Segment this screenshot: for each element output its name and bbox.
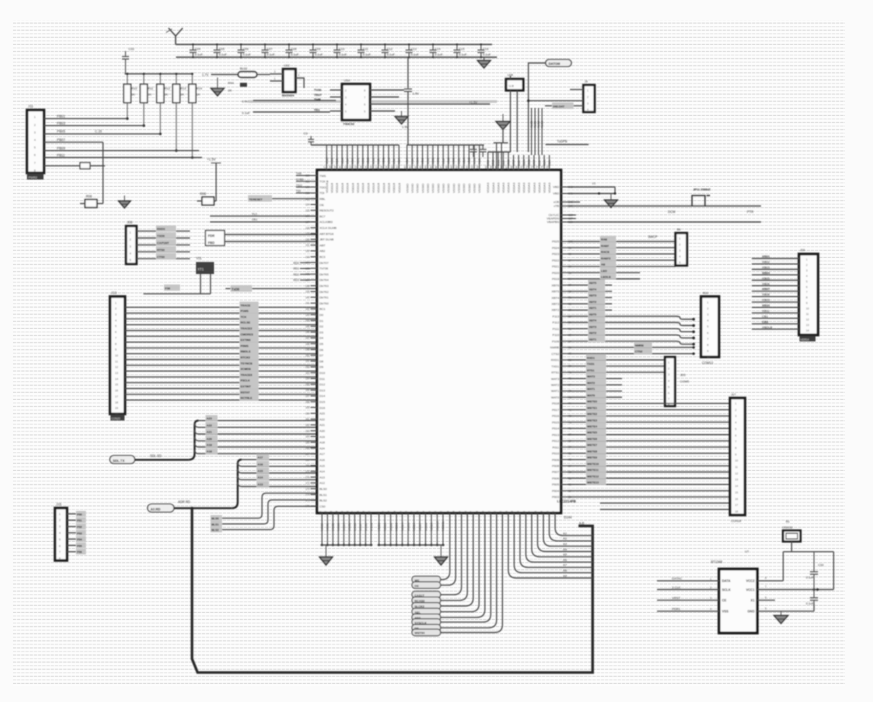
- svg-text:PB03: PB03: [57, 121, 65, 125]
- svg-text:P005: P005: [552, 483, 559, 487]
- svg-text:0.1uF: 0.1uF: [339, 53, 347, 57]
- svg-text:TRACE8: TRACE8: [241, 373, 253, 377]
- svg-text:175: 175: [305, 499, 310, 502]
- svg-text:P017: P017: [552, 408, 559, 412]
- svg-text:XB06: XB06: [762, 282, 770, 286]
- svg-text:D3: D3: [320, 330, 324, 334]
- svg-text:WBTE2: WBTE2: [587, 412, 598, 416]
- svg-text:MAX604: MAX604: [282, 94, 294, 98]
- svg-text:17: 17: [115, 394, 119, 398]
- svg-text:VSS: VSS: [532, 160, 536, 166]
- svg-text:VDA: VDA: [542, 159, 546, 166]
- svg-text:16: 16: [115, 389, 119, 393]
- svg-text:CON20: CON20: [112, 416, 121, 420]
- svg-text:TDO: TDO: [296, 183, 303, 187]
- svg-text:R08: R08: [200, 192, 206, 196]
- svg-text:132: 132: [305, 250, 310, 253]
- svg-text:VD1: VD1: [356, 158, 360, 164]
- svg-text:V18: V18: [478, 158, 482, 164]
- svg-text:VS3: VS3: [361, 158, 365, 164]
- svg-text:XBT5: XBT5: [589, 281, 597, 285]
- svg-text:VDDA3: VDDA3: [537, 182, 541, 193]
- svg-text:169: 169: [305, 465, 310, 468]
- svg-text:RABF: RABF: [601, 244, 609, 248]
- svg-text:V3A: V3A: [345, 157, 349, 164]
- svg-text:R06: R06: [86, 195, 92, 199]
- svg-text:PWR2: PWR2: [29, 175, 38, 179]
- svg-text:P023: P023: [552, 252, 559, 256]
- svg-text:WBT84: WBT84: [415, 631, 425, 635]
- svg-text:XBT2: XBT2: [589, 331, 597, 335]
- svg-text:24D.DAT: 24D.DAT: [553, 105, 565, 109]
- svg-text:P013: P013: [552, 433, 559, 437]
- svg-text:0.1uF: 0.1uF: [291, 53, 299, 57]
- svg-text:A13: A13: [320, 475, 326, 479]
- svg-text:C15: C15: [459, 47, 465, 51]
- svg-text:BLS0: BLS0: [320, 487, 328, 491]
- svg-text:0.1uF: 0.1uF: [411, 53, 419, 57]
- svg-text:141: 141: [305, 302, 310, 305]
- svg-text:B1: B1: [786, 520, 790, 524]
- svg-text:130: 130: [305, 238, 310, 241]
- svg-text:U.8: U.8: [509, 84, 514, 88]
- svg-text:VDD: VDD: [491, 159, 495, 166]
- svg-text:162: 162: [305, 424, 310, 427]
- svg-text:WAT1: WAT1: [551, 389, 559, 393]
- svg-text:WBTE3: WBTE3: [587, 418, 598, 422]
- svg-text:RXD1: RXD1: [551, 358, 559, 362]
- svg-text:A9: A9: [563, 574, 567, 578]
- svg-text:X1: X1: [751, 599, 755, 603]
- svg-text:159: 159: [305, 407, 310, 410]
- svg-text:1.7V: 1.7V: [202, 73, 209, 77]
- svg-text:C07: C07: [267, 47, 273, 51]
- svg-text:BLS0: BLS0: [212, 517, 220, 521]
- svg-text:P007: P007: [552, 470, 559, 474]
- svg-text:VSSIO: VSSIO: [441, 183, 445, 193]
- svg-text:P109: P109: [552, 339, 559, 343]
- svg-text:C13: C13: [411, 47, 417, 51]
- svg-text:B10: B10: [703, 291, 709, 295]
- svg-text:VSS: VSS: [472, 158, 476, 164]
- svg-text:TAB: TAB: [296, 172, 301, 176]
- svg-text:P022: P022: [552, 258, 559, 262]
- svg-text:A16: A16: [320, 458, 326, 462]
- svg-text:RCLSE: RCLSE: [241, 321, 251, 325]
- svg-text:BC3: BC3: [320, 255, 326, 259]
- svg-text:ABT: ABT: [320, 243, 326, 247]
- svg-text:P01: P01: [77, 519, 82, 523]
- svg-text:A23: A23: [320, 412, 326, 416]
- svg-text:J06: J06: [127, 221, 132, 225]
- svg-text:VSS: VSS: [512, 160, 516, 166]
- svg-text:P011: P011: [552, 445, 559, 449]
- svg-text:RTCK2: RTCK2: [241, 356, 251, 360]
- svg-text:VDD: VDD: [366, 157, 370, 164]
- svg-text:A14: A14: [258, 476, 264, 480]
- svg-text:C14: C14: [435, 47, 441, 51]
- svg-text:D14: D14: [320, 394, 326, 398]
- svg-text:CB2: CB2: [762, 320, 768, 324]
- svg-text:VCC2: VCC2: [746, 579, 755, 583]
- svg-text:P018: P018: [552, 402, 559, 406]
- svg-text:D12: D12: [320, 383, 326, 387]
- svg-text:J13: J13: [111, 291, 117, 295]
- svg-text:A1: A1: [563, 531, 567, 535]
- svg-text:138: 138: [305, 285, 310, 288]
- svg-text:C02: C02: [129, 47, 135, 51]
- svg-text:GND: GND: [747, 610, 755, 614]
- svg-text:BLS2: BLS2: [212, 528, 220, 532]
- svg-text:XBT3: XBT3: [589, 294, 597, 298]
- svg-text:J11: J11: [28, 105, 33, 109]
- svg-text:C30: C30: [818, 563, 824, 567]
- svg-text:VSSIO: VSSIO: [452, 183, 456, 193]
- svg-text:RBOLE: RBOLE: [241, 350, 251, 354]
- svg-text:P014: P014: [552, 427, 559, 431]
- svg-text:AB2: AB2: [320, 249, 326, 253]
- svg-text:V33: V33: [517, 160, 521, 166]
- svg-text:TMS: TMS: [320, 174, 326, 178]
- svg-text:RBL: RBL: [320, 197, 326, 201]
- svg-text:XCLK DLMB: XCLK DLMB: [320, 226, 337, 230]
- svg-text:DATA: DATA: [722, 579, 731, 583]
- svg-text:PB01: PB01: [57, 114, 65, 118]
- svg-text:P04: P04: [77, 538, 82, 542]
- svg-text:WBTE4: WBTE4: [587, 425, 598, 429]
- svg-text:P010: P010: [552, 452, 559, 456]
- svg-text:142: 142: [305, 308, 310, 311]
- svg-text:A17: A17: [320, 452, 326, 456]
- svg-text:VSSIO: VSSIO: [410, 183, 414, 193]
- svg-text:VDDA3: VDDA3: [517, 182, 521, 193]
- svg-text:P03: P03: [77, 531, 82, 535]
- svg-text:VDD18: VDD18: [351, 183, 355, 193]
- svg-text:VD1: VD1: [421, 158, 425, 164]
- svg-text:2.CLK: 2.CLK: [672, 585, 682, 589]
- svg-text:VBD: VBD: [553, 185, 560, 189]
- svg-text:176: 176: [305, 505, 310, 508]
- svg-text:XBT5: XBT5: [589, 312, 597, 316]
- svg-text:VDD: VDD: [431, 157, 435, 164]
- svg-text:V18: V18: [537, 160, 541, 166]
- svg-text:VDD18: VDD18: [366, 183, 370, 193]
- svg-text:CTS2: CTS2: [635, 350, 643, 354]
- svg-text:Y01: Y01: [196, 257, 202, 261]
- svg-text:RTS0: RTS0: [157, 248, 165, 252]
- svg-text:0.1uF: 0.1uF: [806, 602, 814, 606]
- svg-text:157: 157: [305, 395, 310, 398]
- svg-text:LBDLB: LBDLB: [601, 275, 611, 279]
- svg-text:COM5: COM5: [680, 380, 689, 384]
- svg-text:VSSIO: VSSIO: [431, 183, 435, 193]
- svg-text:WBTE10: WBTE10: [587, 462, 599, 466]
- svg-text:BLS2: BLS2: [320, 499, 328, 503]
- svg-text:XBT4: XBT4: [551, 296, 559, 300]
- svg-text:0.1uF: 0.1uF: [242, 111, 250, 115]
- svg-text:A24: A24: [320, 446, 326, 450]
- svg-text:C16: C16: [483, 47, 489, 51]
- svg-text:XB04: XB04: [762, 271, 770, 275]
- svg-text:C9: C9: [304, 132, 308, 136]
- svg-text:VSA: VSA: [416, 157, 420, 164]
- svg-text:F06: F06: [165, 286, 171, 290]
- svg-text:VSS: VSS: [452, 158, 456, 164]
- svg-text:TXD1: TXD1: [551, 364, 559, 368]
- svg-text:WBTE7: WBTE7: [587, 443, 598, 447]
- svg-text:RABF2: RABF2: [601, 256, 611, 260]
- svg-text:P020: P020: [552, 271, 559, 275]
- svg-text:160: 160: [305, 412, 310, 415]
- svg-text:C11: C11: [363, 47, 369, 51]
- svg-text:DATAC: DATAC: [672, 577, 683, 581]
- svg-text:VDD18: VDD18: [371, 183, 375, 193]
- svg-text:CB1: CB1: [762, 314, 768, 318]
- svg-text:C08: C08: [291, 47, 297, 51]
- svg-text:P019: P019: [552, 277, 559, 281]
- svg-text:0.1uF: 0.1uF: [219, 53, 227, 57]
- svg-text:A18: A18: [320, 441, 326, 445]
- svg-text:166: 166: [305, 447, 310, 450]
- svg-text:WAT0: WAT0: [587, 393, 595, 397]
- svg-text:VSSIO: VSSIO: [436, 183, 440, 193]
- svg-text:DbT64: DbT64: [320, 278, 329, 282]
- svg-text:R11: R11: [148, 87, 154, 91]
- svg-text:CTS2: CTS2: [551, 352, 559, 356]
- svg-text:RD2: RD2: [293, 272, 299, 276]
- svg-text:P021: P021: [552, 265, 559, 269]
- svg-text:VDD18: VDD18: [346, 183, 350, 193]
- svg-text:CAP1NT: CAP1NT: [157, 241, 169, 245]
- svg-text:P016: P016: [552, 414, 559, 418]
- svg-text:CON18: CON18: [731, 519, 741, 523]
- svg-text:J17: J17: [731, 393, 736, 397]
- svg-text:A22: A22: [320, 417, 326, 421]
- svg-text:VDD: VDD: [382, 157, 386, 164]
- svg-text:OE: OE: [415, 584, 419, 588]
- svg-text:VDDA3: VDDA3: [522, 182, 526, 193]
- svg-text:XB10: XB10: [762, 304, 770, 308]
- svg-text:VDDA3: VDDA3: [507, 182, 511, 193]
- svg-text:ACLK8B3: ACLK8B3: [320, 220, 334, 224]
- svg-text:A15: A15: [320, 464, 326, 468]
- svg-text:BC7: BC7: [320, 214, 326, 218]
- svg-text:A14: A14: [320, 470, 326, 474]
- svg-text:BLS1: BLS1: [212, 522, 220, 526]
- svg-text:154: 154: [305, 378, 310, 381]
- svg-text:A15: A15: [258, 469, 264, 473]
- svg-text:VDD18: VDD18: [387, 183, 391, 193]
- svg-text:D5: D5: [320, 342, 324, 346]
- svg-text:SCLK: SCLK: [722, 588, 731, 592]
- svg-text:R14: R14: [196, 87, 202, 91]
- svg-text:161: 161: [305, 418, 310, 421]
- svg-text:VSSIO: VSSIO: [478, 183, 482, 193]
- svg-text:VDD: VDD: [527, 159, 531, 166]
- svg-text:VDD18: VDD18: [392, 183, 396, 193]
- svg-text:+1.5V: +1.5V: [469, 101, 478, 105]
- svg-text:RSTAT: RSTAT: [241, 390, 250, 394]
- svg-text:TDO: TDO: [320, 185, 327, 189]
- svg-text:TCK: TCK: [241, 315, 248, 319]
- svg-text:0.1uF: 0.1uF: [387, 53, 395, 57]
- svg-text:P009: P009: [552, 458, 559, 462]
- svg-text:U7: U7: [745, 550, 749, 554]
- svg-text:WAT3: WAT3: [551, 377, 559, 381]
- svg-text:D144: D144: [564, 516, 572, 520]
- svg-text:+1.5V: +1.5V: [207, 158, 217, 162]
- svg-text:PB05: PB05: [57, 130, 65, 134]
- svg-text:A8: A8: [563, 569, 567, 573]
- svg-text:VSSIO: VSSIO: [473, 183, 477, 193]
- svg-text:155: 155: [305, 383, 310, 386]
- svg-text:XBT6: XBT6: [551, 283, 559, 287]
- svg-text:NMRB: NMRB: [635, 344, 644, 348]
- svg-text:VDD: VDD: [507, 159, 511, 166]
- svg-text:WAT2: WAT2: [587, 381, 595, 385]
- svg-text:CR2032: CR2032: [782, 525, 793, 529]
- svg-text:VDD18: VDD18: [356, 183, 360, 193]
- svg-text:V18: V18: [501, 160, 505, 166]
- svg-text:P006: P006: [552, 476, 559, 480]
- svg-text:U3A: U3A: [344, 79, 350, 83]
- svg-text:R10: R10: [131, 87, 137, 91]
- svg-text:131: 131: [305, 244, 310, 247]
- svg-text:DbT60: DbT60: [320, 301, 329, 305]
- svg-text:TB1: TB1: [314, 108, 320, 112]
- svg-text:VDDA3: VDDA3: [532, 182, 536, 193]
- svg-text:RAB: RAB: [601, 238, 607, 242]
- svg-text:P1MS: P1MS: [241, 309, 249, 313]
- svg-text:V33: V33: [457, 158, 461, 164]
- svg-text:VDD18: VDD18: [361, 183, 365, 193]
- svg-text:D6: D6: [320, 348, 324, 352]
- svg-text:VDD18: VDD18: [335, 183, 339, 193]
- svg-text:XBT5: XBT5: [551, 290, 559, 294]
- svg-text:DATGM: DATGM: [549, 62, 561, 66]
- svg-text:xTB: xTB: [554, 204, 559, 208]
- svg-text:XB01: XB01: [762, 255, 770, 259]
- svg-text:BC1: BC1: [320, 307, 326, 311]
- svg-text:164: 164: [305, 436, 310, 439]
- svg-text:D8: D8: [320, 359, 324, 363]
- svg-text:P111: P111: [552, 327, 559, 331]
- svg-text:VSSIO: VSSIO: [467, 183, 471, 193]
- svg-text:RTS1: RTS1: [551, 371, 559, 375]
- svg-text:CTS0: CTS0: [157, 255, 165, 259]
- svg-text:158: 158: [305, 401, 310, 404]
- svg-text:VDA: VDA: [462, 157, 466, 164]
- svg-text:P004: P004: [552, 489, 559, 493]
- svg-text:172: 172: [305, 482, 310, 485]
- svg-text:D1: D1: [320, 319, 324, 323]
- svg-text:ABT.BTG6: ABT.BTG6: [320, 232, 335, 236]
- svg-text:D9: D9: [320, 365, 324, 369]
- svg-text:CS0: CS0: [320, 504, 326, 508]
- svg-text:RCTRLE: RCTRLE: [241, 396, 253, 400]
- svg-text:VSSIO: VSSIO: [462, 183, 466, 193]
- svg-text:PL0: PL0: [252, 212, 257, 216]
- svg-text:XT1: XT1: [198, 268, 204, 272]
- svg-text:EXTINT: EXTINT: [241, 385, 252, 389]
- svg-text:WBTE8: WBTE8: [587, 449, 598, 453]
- svg-text:D2: D2: [320, 325, 324, 329]
- svg-text:P00: P00: [77, 512, 82, 516]
- svg-text:C06: C06: [243, 47, 249, 51]
- svg-text:R12: R12: [164, 87, 170, 91]
- svg-text:XB09: XB09: [762, 298, 770, 302]
- svg-text:D4: D4: [320, 336, 324, 340]
- svg-text:A21: A21: [320, 423, 326, 427]
- svg-text:0.1uF: 0.1uF: [459, 53, 467, 57]
- svg-text:U02: U02: [284, 64, 290, 68]
- svg-text:RD0: RD0: [293, 261, 299, 265]
- svg-text:J15: J15: [56, 503, 61, 507]
- svg-text:P112: P112: [552, 321, 559, 325]
- svg-text:XBT3: XBT3: [551, 302, 559, 306]
- svg-text:VDD18: VDD18: [340, 183, 344, 193]
- svg-text:TDI: TDI: [296, 189, 301, 193]
- svg-text:139: 139: [305, 291, 310, 294]
- svg-text:VDDA3: VDDA3: [512, 182, 516, 193]
- svg-text:JBT DLNB: JBT DLNB: [320, 238, 334, 242]
- svg-text:BT1348: BT1348: [711, 560, 722, 564]
- svg-text:VSS: VSS: [722, 610, 728, 614]
- svg-text:143: 143: [305, 314, 310, 317]
- svg-text:BL02: BL02: [240, 67, 248, 71]
- svg-text:V18: V18: [377, 158, 381, 164]
- svg-text:SYB8: SYB8: [296, 178, 304, 182]
- svg-text:WBTE5: WBTE5: [587, 431, 598, 435]
- svg-text:VSS: VSS: [371, 158, 375, 164]
- svg-text:A22: A22: [207, 423, 213, 427]
- svg-text:TXD1: TXD1: [587, 362, 595, 366]
- svg-text:XB02: XB02: [762, 260, 770, 264]
- svg-text:VSS: VSS: [436, 158, 440, 164]
- svg-text:WBTE12: WBTE12: [587, 474, 599, 478]
- svg-text:12: 12: [115, 365, 119, 369]
- svg-text:D0: D0: [320, 313, 324, 317]
- svg-text:A20: A20: [207, 437, 213, 441]
- svg-text:P110: P110: [552, 333, 559, 337]
- svg-text:128: 128: [305, 227, 310, 230]
- svg-text:J9: J9: [585, 80, 588, 84]
- svg-text:WAT2: WAT2: [551, 383, 559, 387]
- svg-text:WBTE11: WBTE11: [587, 468, 599, 472]
- svg-text:WBTE6: WBTE6: [587, 437, 598, 441]
- svg-text:140: 140: [305, 296, 310, 299]
- svg-text:J19: J19: [800, 248, 805, 252]
- svg-text:A19: A19: [207, 443, 213, 447]
- svg-text:P05: P05: [77, 544, 82, 548]
- svg-text:TDI: TDI: [320, 191, 325, 195]
- svg-text:WAT1: WAT1: [587, 387, 595, 391]
- svg-text:A21: A21: [207, 430, 213, 434]
- svg-text:A6: A6: [563, 558, 567, 562]
- svg-text:DCM: DCM: [668, 210, 676, 214]
- svg-text:XB11: XB11: [762, 309, 770, 313]
- svg-text:VSSIO: VSSIO: [447, 183, 451, 193]
- svg-text:C12: C12: [387, 47, 393, 51]
- svg-text:149: 149: [305, 349, 310, 352]
- svg-text:VDD18: VDD18: [397, 183, 401, 193]
- svg-text:P008: P008: [552, 464, 559, 468]
- svg-text:VDD: VDD: [447, 157, 451, 164]
- svg-text:DbT07: DbT07: [320, 261, 329, 265]
- svg-text:V3A: V3A: [548, 159, 552, 166]
- svg-text:1.8V: 1.8V: [413, 92, 420, 96]
- svg-text:SDL SD: SDL SD: [150, 454, 162, 458]
